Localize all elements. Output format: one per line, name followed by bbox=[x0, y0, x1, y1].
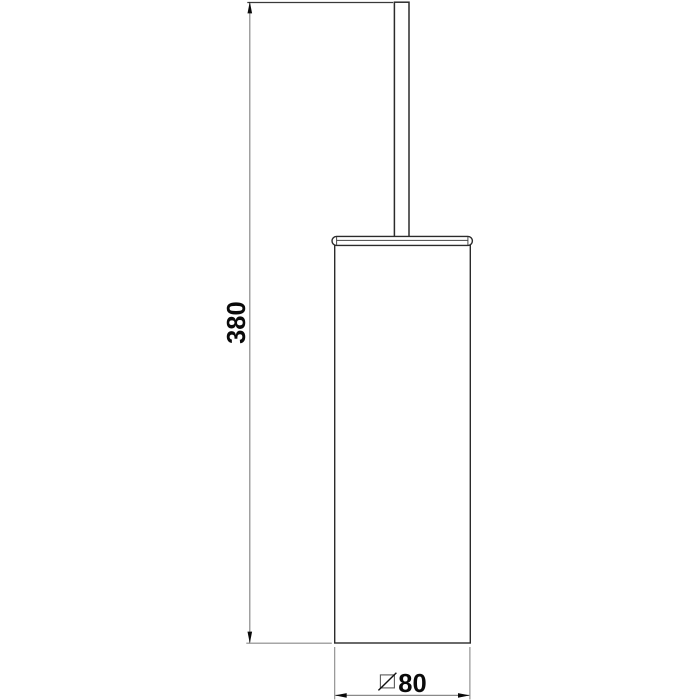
svg-text:80: 80 bbox=[398, 670, 426, 698]
svg-text:380: 380 bbox=[223, 301, 251, 344]
